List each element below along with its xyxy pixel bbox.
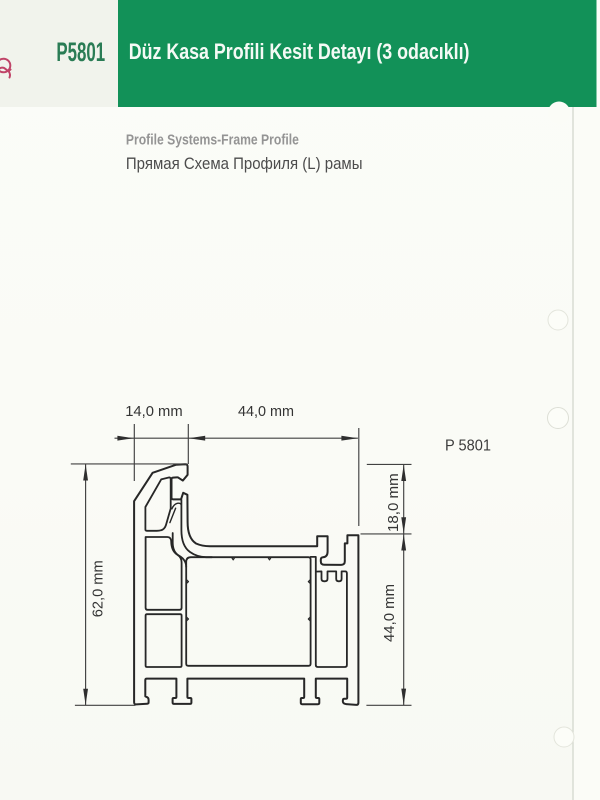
- svg-text:44,0 mm: 44,0 mm: [381, 584, 398, 642]
- svg-text:P5801: P5801: [56, 37, 105, 67]
- svg-text:Прямая Схема Профиля (L) рамы: Прямая Схема Профиля (L) рамы: [126, 154, 363, 173]
- svg-text:P 5801: P 5801: [445, 437, 491, 454]
- svg-text:14,0 mm: 14,0 mm: [125, 403, 183, 420]
- svg-text:18,0 mm: 18,0 mm: [385, 473, 402, 532]
- svg-text:Profile Systems-Frame Profile: Profile Systems-Frame Profile: [126, 132, 299, 149]
- svg-text:62,0 mm: 62,0 mm: [90, 560, 107, 617]
- svg-text:Düz Kasa Profili Kesit Detayı: Düz Kasa Profili Kesit Detayı (3 odacıkl…: [129, 39, 470, 64]
- svg-text:44,0 mm: 44,0 mm: [238, 403, 294, 420]
